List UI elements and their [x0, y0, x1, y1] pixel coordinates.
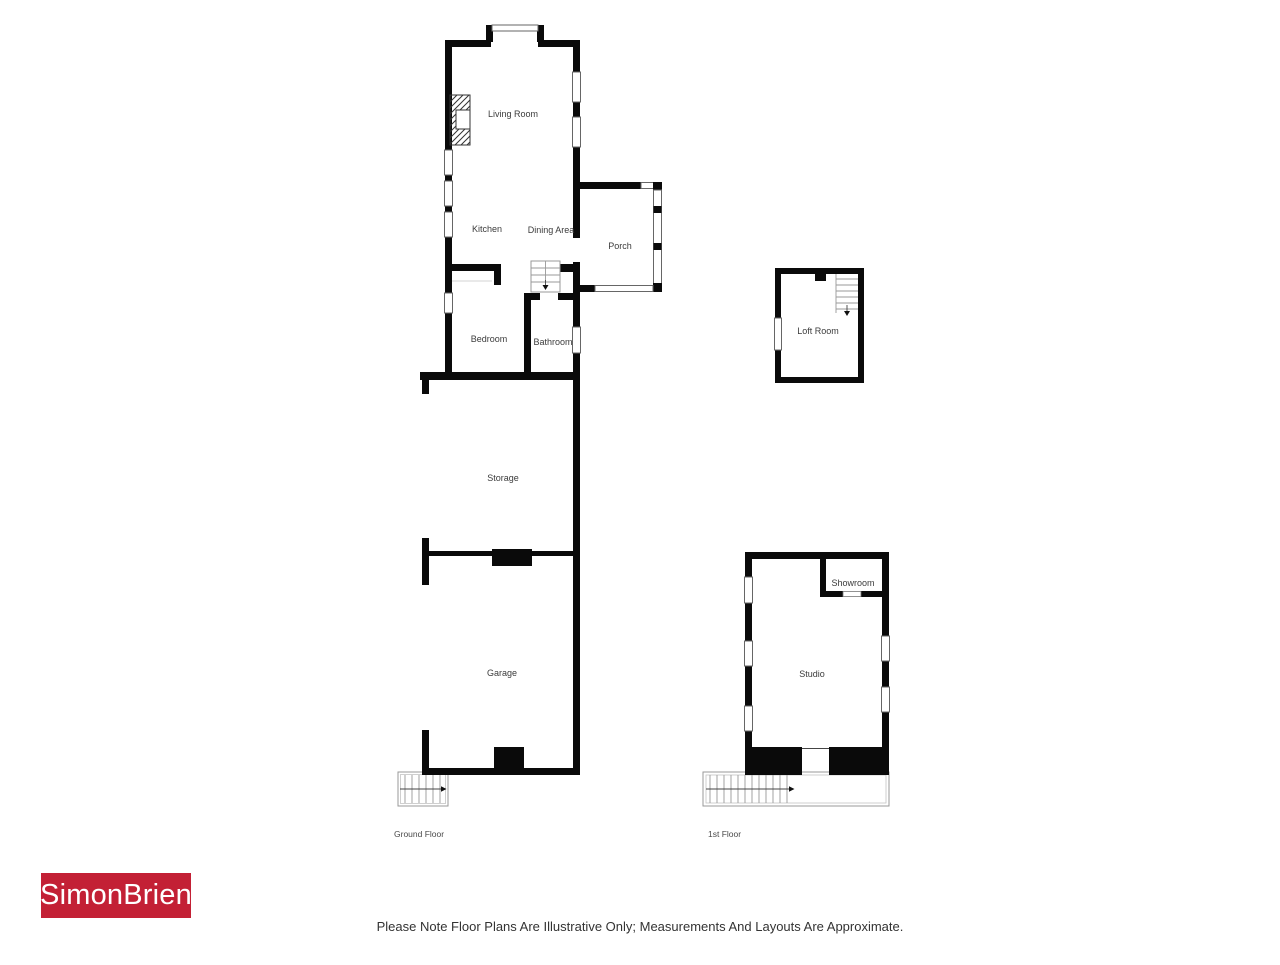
exterior-stairs-icon — [398, 772, 448, 806]
first-floor-windows — [745, 577, 890, 731]
wall-segment — [422, 538, 429, 585]
window — [745, 641, 753, 666]
storage-garage-walls — [422, 538, 580, 775]
window — [745, 706, 753, 731]
room-label-kitchen: Kitchen — [472, 224, 502, 234]
loft-stairs-icon — [836, 274, 858, 316]
window — [573, 117, 581, 147]
room-label-bathroom: Bathroom — [533, 337, 572, 347]
ground-floor-plan: Living Room Kitchen Dining Area Porch Be… — [394, 25, 662, 839]
room-label-storage: Storage — [487, 473, 519, 483]
brand-logo-text: SimonBrien — [40, 879, 192, 912]
wall-segment — [653, 283, 662, 292]
floorplan-canvas: Living Room Kitchen Dining Area Porch Be… — [0, 0, 1280, 960]
wall-segment — [422, 380, 429, 394]
wall-segment — [882, 552, 889, 775]
garage-door-block — [494, 747, 524, 770]
wall-segment — [445, 40, 452, 380]
loft-plan: Loft Room — [775, 268, 865, 383]
room-label-studio: Studio — [799, 669, 825, 679]
wall-segment — [445, 264, 501, 271]
wall-segment — [524, 293, 540, 300]
fireplace-opening — [456, 110, 470, 129]
floor-label-ground: Ground Floor — [394, 829, 444, 839]
wall-segment — [420, 372, 580, 380]
wall-segment — [745, 552, 889, 559]
wall-segment — [820, 552, 826, 597]
first-floor-plan: Showroom Studio 1st Floor — [703, 552, 890, 839]
window — [573, 327, 581, 353]
room-label-living-room: Living Room — [488, 109, 538, 119]
window — [445, 150, 453, 175]
window — [595, 286, 653, 292]
deck-stairs-icon — [703, 772, 889, 806]
room-label-showroom: Showroom — [831, 578, 874, 588]
door-opening — [843, 592, 861, 597]
disclaimer-text: Please Note Floor Plans Are Illustrative… — [0, 919, 1280, 934]
wall-segment — [654, 243, 662, 250]
room-label-porch: Porch — [608, 241, 632, 251]
room-label-loft-room: Loft Room — [797, 326, 839, 336]
floor-label-first: 1st Floor — [708, 829, 741, 839]
wall-segment — [861, 591, 889, 597]
wall-segment — [654, 206, 662, 213]
window — [445, 181, 453, 206]
wall-segment — [745, 747, 802, 775]
room-label-bedroom: Bedroom — [471, 334, 508, 344]
fireplace-icon — [450, 95, 470, 145]
wall-segment — [820, 591, 843, 597]
wall-segment — [577, 285, 595, 292]
wall-segment — [494, 271, 501, 285]
wall-segment — [829, 747, 889, 775]
window — [492, 25, 538, 31]
room-label-garage: Garage — [487, 668, 517, 678]
window — [641, 183, 655, 189]
wall-segment — [524, 293, 531, 372]
wall-segment — [573, 40, 580, 775]
wall-segment — [559, 264, 580, 272]
porch-structure — [577, 182, 662, 292]
wall-segment — [577, 182, 641, 189]
window — [654, 190, 662, 284]
wall-segment — [775, 377, 864, 383]
window — [882, 687, 890, 712]
window — [882, 636, 890, 661]
window — [745, 577, 753, 603]
window — [775, 318, 782, 350]
door-opening — [572, 238, 581, 262]
ground-floor-walls — [420, 25, 580, 775]
window — [573, 72, 581, 102]
room-label-dining-area: Dining Area — [528, 225, 575, 235]
chimney-block — [815, 274, 826, 281]
window — [445, 293, 453, 313]
brand-logo: SimonBrien — [41, 873, 191, 918]
window — [445, 212, 453, 237]
door-block — [492, 549, 532, 566]
wall-segment — [775, 268, 864, 274]
wall-segment — [558, 293, 580, 300]
interior-stairs-icon — [531, 261, 560, 292]
arrow-down-icon — [844, 311, 850, 316]
wall-segment — [858, 268, 864, 383]
